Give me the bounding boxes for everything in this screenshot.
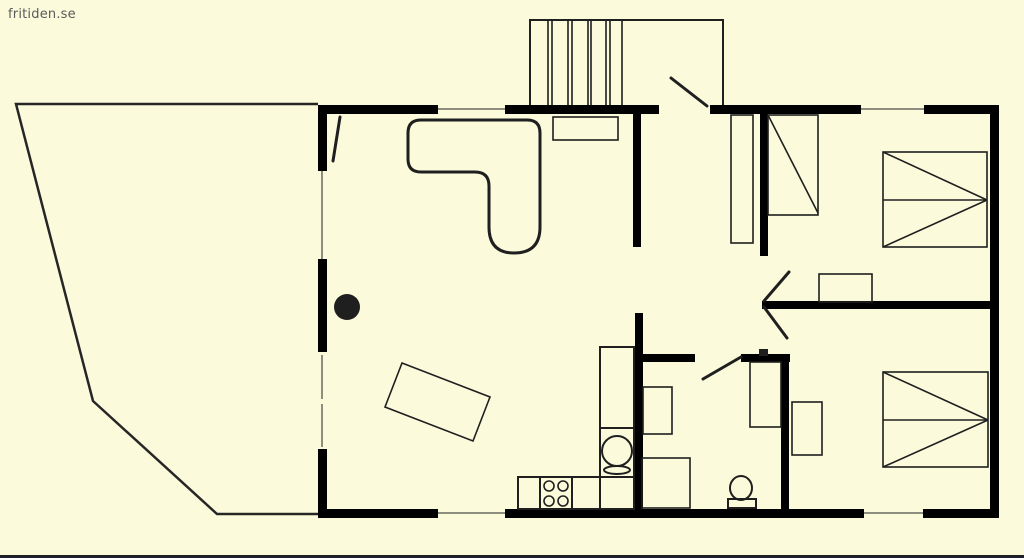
wall-bottom-2 xyxy=(505,509,864,518)
single-bed-diagonal xyxy=(768,115,818,213)
bedroom1-furniture xyxy=(768,115,987,302)
kitchen-tall-cabinet xyxy=(600,347,634,428)
wall-left-2 xyxy=(318,259,327,352)
single-bed-icon xyxy=(768,115,818,215)
burner xyxy=(558,481,568,491)
living-room-furniture xyxy=(334,117,618,441)
counter-cell xyxy=(518,477,540,509)
burner xyxy=(544,496,554,506)
counter-cell xyxy=(572,477,600,509)
wall-top-3 xyxy=(710,105,861,114)
wall-left-3 xyxy=(318,449,327,518)
double-bed-diagonal-top xyxy=(883,152,987,200)
wall-bedroom1-bedroom2 xyxy=(762,301,999,309)
wall-hall-bedroom1 xyxy=(760,105,768,256)
entry-door-swing-icon xyxy=(671,78,707,106)
wall-top-1 xyxy=(318,105,438,114)
bathroom-fixtures xyxy=(642,362,781,508)
deck-outline-icon xyxy=(16,104,320,514)
double-bed-diagonal-bottom xyxy=(883,420,988,467)
sink-bowl xyxy=(602,436,632,466)
wall-top-4 xyxy=(924,105,999,114)
stove-burners-icon xyxy=(544,481,568,506)
wood-stove-icon xyxy=(334,294,360,320)
toilet-bowl xyxy=(730,476,752,500)
nightstand-icon xyxy=(819,274,872,302)
staircase-treads xyxy=(548,20,622,105)
double-bed-icon xyxy=(883,152,987,247)
kitchen-fixtures xyxy=(518,347,634,509)
toilet-icon xyxy=(728,476,756,508)
double-bed-icon xyxy=(883,372,988,467)
doors xyxy=(333,78,789,379)
bathroom-door-swing-icon xyxy=(703,357,741,379)
wall-bottom-3 xyxy=(923,509,999,518)
washbasin-icon xyxy=(643,387,672,434)
sink-drain xyxy=(604,466,630,474)
terrace-door-swing-icon xyxy=(333,117,340,161)
double-bed-diagonal-top xyxy=(883,372,988,420)
sideboard-icon xyxy=(553,117,618,140)
wall-bathroom-bedroom2 xyxy=(781,354,789,518)
bedroom2-furniture xyxy=(792,372,988,467)
nightstand-icon xyxy=(792,402,822,455)
shower-cabinet xyxy=(750,362,781,427)
corner-sofa-icon xyxy=(408,120,540,253)
dining-table-icon xyxy=(385,363,490,441)
wall-right xyxy=(990,105,999,518)
wall-left-1 xyxy=(318,105,327,171)
counter-cell xyxy=(600,477,634,509)
staircase-icon xyxy=(530,20,723,106)
double-bed-diagonal-bottom xyxy=(883,200,987,247)
burner xyxy=(544,481,554,491)
wardrobe-icon xyxy=(731,115,753,243)
floorplan-drawing xyxy=(0,0,1024,558)
bedroom1-door-swing-icon xyxy=(764,272,789,301)
bathroom-cabinet-icon xyxy=(642,458,690,508)
floorplan-image: fritiden.se xyxy=(0,0,1024,558)
kitchen-counter-icon xyxy=(518,477,634,509)
wall-hall-bathroom-left xyxy=(641,354,695,362)
wall-living-hall xyxy=(633,105,641,247)
wall-bottom-1 xyxy=(318,509,438,518)
interior-walls xyxy=(633,105,999,518)
watermark: fritiden.se xyxy=(8,7,76,22)
exterior-walls xyxy=(318,105,999,518)
kitchen-sink-icon xyxy=(602,436,632,474)
wall-end-tick xyxy=(759,349,768,356)
burner xyxy=(558,496,568,506)
bedroom2-door-swing-icon xyxy=(764,307,787,338)
staircase-outline xyxy=(530,20,723,106)
